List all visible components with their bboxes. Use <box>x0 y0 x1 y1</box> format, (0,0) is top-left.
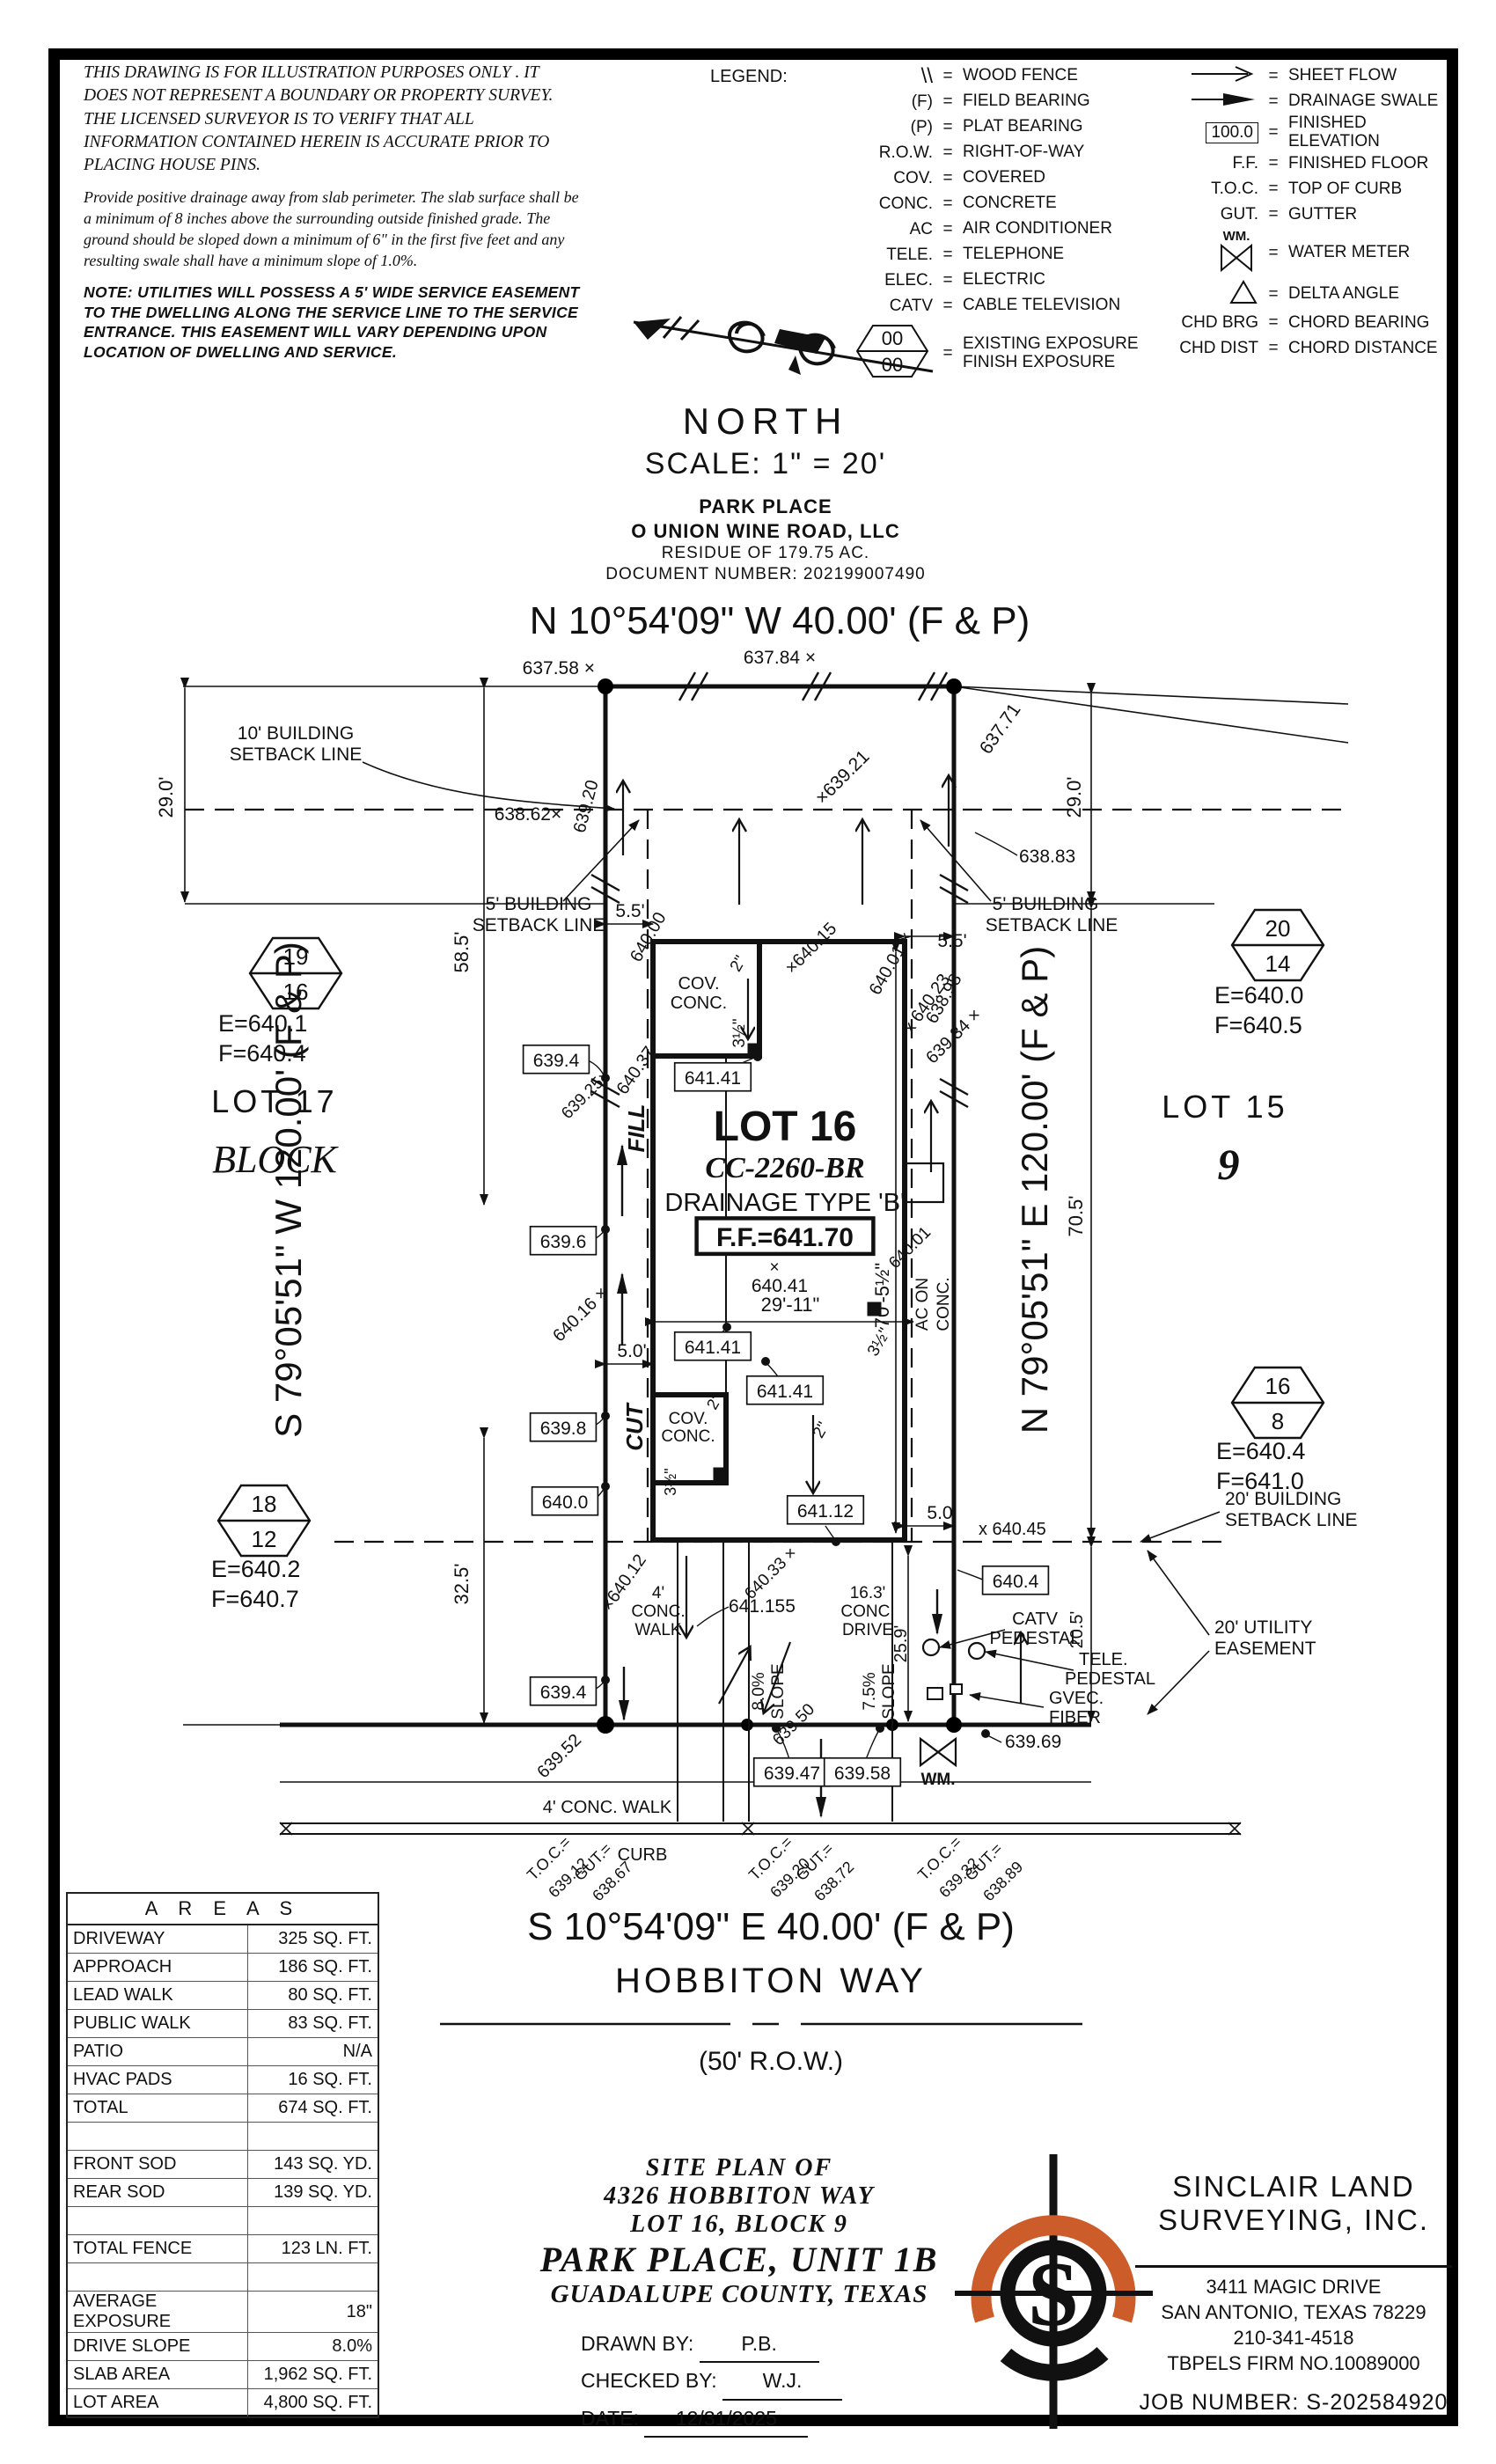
legend-equals: = <box>933 220 963 239</box>
walk-x-marks <box>280 1822 1241 1835</box>
legend-item: COV.=COVERED <box>814 165 1140 191</box>
legend-item: CHD BRG=CHORD BEARING <box>1153 311 1448 336</box>
areas-row: PATION/A <box>68 2038 378 2066</box>
delta-legend-symbol <box>1153 279 1258 311</box>
legend-item: (P)=PLAT BEARING <box>814 114 1140 140</box>
plot-label: CC-2260-BR <box>705 1152 864 1184</box>
abbrev-legend-symbol: ELEC. <box>814 271 933 290</box>
plot-label: 70'-5½" <box>871 1263 893 1328</box>
plot-label: 639.69 <box>1005 1732 1061 1752</box>
catv-pedestal-icon <box>923 1639 939 1655</box>
areas-row-value: 18" <box>247 2292 378 2333</box>
arrow-solid-legend-symbol <box>1153 91 1258 114</box>
plot-label: DRIVE <box>842 1621 893 1639</box>
svg-text:S: S <box>1028 2242 1079 2345</box>
plot-label: WALK <box>634 1621 681 1639</box>
plot-label: 14 <box>1265 950 1291 977</box>
scale-label: SCALE: 1" = 20' <box>563 447 968 481</box>
site-plan-sheet: THIS DRAWING IS FOR ILLUSTRATION PURPOSE… <box>0 0 1496 2464</box>
plot-label: 640.0 <box>542 1492 589 1513</box>
plot-label: COV. <box>669 1410 708 1428</box>
plot-label: 641.41 <box>757 1382 813 1402</box>
legend-item: F.F.=FINISHED FLOOR <box>1153 151 1448 177</box>
plot-label: ×639.21 <box>811 746 873 808</box>
abbrev-legend-symbol: F.F. <box>1153 154 1258 173</box>
legend-item: (F)=FIELD BEARING <box>814 89 1140 114</box>
plot-label: 9 <box>1218 1140 1240 1189</box>
legend-equals: = <box>1258 339 1288 358</box>
plot-label: COV. <box>678 974 719 994</box>
areas-row: APPROACH186 SQ. FT. <box>68 1954 378 1982</box>
legend-equals: = <box>1258 285 1288 304</box>
wood-fence-hashes <box>591 672 968 1107</box>
plot-label: 640.16 × <box>549 1283 612 1346</box>
legend-equals: = <box>933 143 963 163</box>
plot-label: 638.62× <box>495 804 562 825</box>
areas-row-label: SLAB AREA <box>68 2361 247 2389</box>
legend-equals: = <box>1258 92 1288 112</box>
legend-label: CHORD DISTANCE <box>1288 340 1438 358</box>
legend-item: ELEC.=ELECTRIC <box>814 268 1140 293</box>
checked-by-label: CHECKED BY: <box>581 2369 717 2392</box>
areas-row-value: 186 SQ. FT. <box>247 1954 378 1982</box>
abbrev-legend-symbol: CHD BRG <box>1153 313 1258 333</box>
drainage-note: Provide positive drainage away from slab… <box>84 187 581 272</box>
areas-row-value <box>247 2123 378 2151</box>
areas-row-value: 4,800 SQ. FT. <box>247 2389 378 2417</box>
areas-row: AVERAGE EXPOSURE18" <box>68 2292 378 2333</box>
subdivision-owner: O UNION WINE ROAD, LLC <box>546 519 986 544</box>
plot-label: 641.12 <box>797 1501 854 1522</box>
plot-label: 639.8 <box>540 1419 587 1439</box>
plot-label: 5.5' <box>615 901 644 921</box>
drawn-by-label: DRAWN BY: <box>581 2332 693 2355</box>
plot-label: 8 <box>1272 1408 1284 1434</box>
firm-name-line2: SURVEYING, INC. <box>1135 2204 1452 2237</box>
north-arrow-icon <box>607 290 959 405</box>
plot-label: 639.52 <box>533 1730 585 1782</box>
areas-row <box>68 2123 378 2151</box>
firm-name-block: SINCLAIR LAND SURVEYING, INC. <box>1135 2170 1452 2237</box>
areas-row-label: FRONT SOD <box>68 2151 247 2179</box>
abbrev-legend-symbol: CHD DIST <box>1153 339 1258 358</box>
plot-label: 639.4 <box>540 1683 587 1703</box>
areas-row-label: AVERAGE EXPOSURE <box>68 2292 247 2333</box>
areas-row: TOTAL FENCE123 LN. FT. <box>68 2235 378 2263</box>
legend-label: RIGHT-OF-WAY <box>963 143 1084 162</box>
title-county: GUADALUPE COUNTY, TEXAS <box>488 2280 990 2309</box>
title-address: 4326 HOBBITON WAY <box>488 2182 990 2211</box>
legend-item: =DELTA ANGLE <box>1153 279 1448 311</box>
plot-label: 639.58 <box>834 1764 891 1784</box>
plot-label: S 10°54'09" E 40.00' (F & P) <box>527 1905 1015 1948</box>
legend-item: \\=WOOD FENCE <box>814 63 1140 89</box>
plot-label: 639.4 <box>533 1051 580 1071</box>
areas-row: REAR SOD139 SQ. YD. <box>68 2179 378 2207</box>
date-label: DATE: <box>581 2407 639 2430</box>
plot-label: WM. <box>920 1771 955 1789</box>
subdivision-header: PARK PLACE O UNION WINE ROAD, LLC RESIDU… <box>546 495 986 585</box>
areas-row-label <box>68 2263 247 2292</box>
legend-equals: = <box>933 169 963 188</box>
plot-label: PEDESTAL <box>1065 1669 1155 1689</box>
checked-by-value: W.J. <box>722 2363 842 2400</box>
legend-equals: = <box>1258 67 1288 86</box>
plot-label: EASEMENT <box>1214 1639 1316 1659</box>
drawn-by-value: P.B. <box>700 2326 819 2363</box>
areas-row: HVAC PADS16 SQ. FT. <box>68 2066 378 2094</box>
plot-label: x 640.45 <box>979 1520 1046 1539</box>
firm-address2: SAN ANTONIO, TEXAS 78229 <box>1135 2299 1452 2325</box>
plot-label: 16 <box>1265 1373 1291 1399</box>
plot-label: 29'-11" <box>761 1294 820 1316</box>
legend-equals: = <box>1258 244 1288 263</box>
date-value: 12/31/2025 <box>644 2401 808 2438</box>
areas-row-label: LEAD WALK <box>68 1982 247 2010</box>
legend-label: SHEET FLOW <box>1288 67 1397 85</box>
plot-label: 3½" <box>662 1468 679 1495</box>
plot-label: SETBACK LINE <box>986 915 1118 935</box>
abbrev-legend-symbol: CONC. <box>814 194 933 214</box>
legend-equals: = <box>933 118 963 137</box>
plot-label: CATV <box>1012 1610 1059 1629</box>
plot-label: F=640.5 <box>1214 1012 1302 1038</box>
plot-label: 640.33 × <box>741 1544 801 1603</box>
legend-label: AIR CONDITIONER <box>963 220 1112 238</box>
svg-text:WM.: WM. <box>1223 229 1250 244</box>
areas-row: DRIVEWAY325 SQ. FT. <box>68 1925 378 1954</box>
legend-label: DELTA ANGLE <box>1288 285 1399 304</box>
legend-item: R.O.W.=RIGHT-OF-WAY <box>814 140 1140 165</box>
plot-label: 8.0% <box>750 1672 768 1710</box>
legend-equals: = <box>933 92 963 112</box>
legend-item: =DRAINAGE SWALE <box>1153 89 1448 114</box>
legend-equals: = <box>1258 154 1288 173</box>
plot-label: S 79°05'51" W 120.00' (F & P) <box>268 942 309 1438</box>
legend-item: GUT.=GUTTER <box>1153 202 1448 228</box>
tele-pedestal-icon <box>969 1643 985 1659</box>
legend-label: CHORD BEARING <box>1288 314 1429 333</box>
plot-label: 5.0' <box>927 1503 956 1523</box>
plot-label: 12 <box>252 1526 277 1552</box>
abbrev-legend-symbol: COV. <box>814 169 933 188</box>
areas-row-value: 1,962 SQ. FT. <box>247 2361 378 2389</box>
legend-item: CHD DIST=CHORD DISTANCE <box>1153 336 1448 362</box>
plot-label: N 79°05'51" E 120.00' (F & P) <box>1014 946 1055 1434</box>
plot-label: 5' BUILDING <box>993 894 1099 914</box>
subdivision-document: DOCUMENT NUMBER: 202199007490 <box>546 564 986 585</box>
areas-row-value: 325 SQ. FT. <box>247 1925 378 1954</box>
plot-label: 3½" <box>730 1018 749 1047</box>
plot-label: 639.47 <box>764 1764 820 1784</box>
legend-label: FIELD BEARING <box>963 92 1090 111</box>
plot-label: 4' <box>652 1584 664 1602</box>
areas-row-value: N/A <box>247 2038 378 2066</box>
plot-label: 641.41 <box>685 1338 741 1358</box>
water-meter-icon <box>920 1739 956 1765</box>
plot-label: HOBBITON WAY <box>615 1962 927 2000</box>
plot-label: E=640.0 <box>1214 982 1303 1008</box>
title-block: SITE PLAN OF 4326 HOBBITON WAY LOT 16, B… <box>488 2154 990 2309</box>
abbrev-legend-symbol: R.O.W. <box>814 143 933 163</box>
areas-row-value <box>247 2207 378 2235</box>
gvec-fiber-icon <box>950 1684 962 1694</box>
arrow-open-legend-symbol <box>1153 65 1258 88</box>
legend-label: FINISHED ELEVATION <box>1288 114 1448 151</box>
abbrev-legend-symbol: TELE. <box>814 246 933 265</box>
areas-row-value: 83 SQ. FT. <box>247 2010 378 2038</box>
fence-legend-symbol: \\ <box>814 64 933 89</box>
legend-equals: = <box>933 246 963 265</box>
legend-label: WATER METER <box>1288 244 1410 262</box>
plot-label: GVEC. <box>1049 1689 1104 1708</box>
plot-label: FILL <box>623 1104 649 1153</box>
areas-row-value <box>247 2263 378 2292</box>
plot-label: LOT 15 <box>1162 1089 1287 1125</box>
firm-tbpels: TBPELS FIRM NO.10089000 <box>1135 2350 1452 2376</box>
gvec-fiber-icon <box>928 1688 942 1699</box>
plot-label: 70.5' <box>1065 1195 1087 1236</box>
areas-row-label: TOTAL <box>68 2094 247 2123</box>
plot-label: 20.5' <box>1067 1611 1087 1649</box>
plot-label: 20' BUILDING <box>1225 1489 1341 1509</box>
areas-row-value: 80 SQ. FT. <box>247 1982 378 2010</box>
legend-equals: = <box>933 271 963 290</box>
plot-label: 637.58 × <box>523 658 595 678</box>
subdivision-name: PARK PLACE <box>546 495 986 519</box>
plot-label: F.F.=641.70 <box>716 1223 854 1252</box>
areas-row-label: APPROACH <box>68 1954 247 1982</box>
legend-label: ELECTRIC <box>963 271 1045 290</box>
legend-title: LEGEND: <box>710 67 788 87</box>
legend-label: FINISHED FLOOR <box>1288 155 1428 173</box>
title-line: SITE PLAN OF <box>488 2154 990 2182</box>
areas-row: FRONT SOD143 SQ. YD. <box>68 2151 378 2179</box>
signoff-block: DRAWN BY: P.B. CHECKED BY: W.J. DATE: 12… <box>581 2326 842 2438</box>
areas-table-title: A R E A S <box>68 1894 378 1925</box>
plot-label: E=640.2 <box>211 1556 300 1582</box>
legend-label: DRAINAGE SWALE <box>1288 92 1438 111</box>
legend-label: COVERED <box>963 169 1045 187</box>
plot-label: CONC. <box>631 1602 685 1621</box>
abbrev-legend-symbol: (P) <box>814 118 933 137</box>
north-label: NORTH <box>616 400 915 443</box>
plot-label: CUT <box>621 1402 648 1451</box>
utility-easement-note: NOTE: UTILITIES WILL POSSESS A 5' WIDE S… <box>84 282 581 363</box>
plot-label: SETBACK LINE <box>230 744 363 765</box>
areas-row-label: PUBLIC WALK <box>68 2010 247 2038</box>
legend-equals: = <box>1258 180 1288 199</box>
areas-row: SLAB AREA1,962 SQ. FT. <box>68 2361 378 2389</box>
plot-label: 3½" <box>864 1325 895 1360</box>
subdivision-residue: RESIDUE OF 179.75 AC. <box>546 543 986 564</box>
plot-label: 16.3' <box>850 1584 886 1602</box>
areas-row-label: HVAC PADS <box>68 2066 247 2094</box>
areas-row-value: 16 SQ. FT. <box>247 2066 378 2094</box>
plot-label: 29.0' <box>1063 776 1085 818</box>
areas-row-label <box>68 2123 247 2151</box>
title-subdivision: PARK PLACE, UNIT 1B <box>488 2239 990 2280</box>
areas-row-value: 8.0% <box>247 2333 378 2361</box>
firm-address1: 3411 MAGIC DRIVE <box>1135 2274 1452 2299</box>
legend-equals: = <box>1258 313 1288 333</box>
firm-divider <box>1135 2265 1452 2268</box>
plot-label: FIBER <box>1049 1708 1101 1727</box>
areas-row-value: 143 SQ. YD. <box>247 2151 378 2179</box>
plot-label: 7.5% <box>861 1672 879 1710</box>
areas-table-grid: DRIVEWAY325 SQ. FT.APPROACH186 SQ. FT.LE… <box>68 1925 378 2416</box>
box-legend-symbol: 100.0 <box>1153 122 1258 143</box>
legend-label: GUTTER <box>1288 206 1357 224</box>
job-number: JOB NUMBER: S-202584920 <box>1126 2390 1461 2416</box>
abbrev-legend-symbol: T.O.C. <box>1153 180 1258 199</box>
job-number-label: JOB NUMBER: <box>1140 2390 1300 2415</box>
plot-label: 637.71 <box>976 700 1025 758</box>
plot-label: LOT 16 <box>714 1104 857 1150</box>
areas-row-label: LOT AREA <box>68 2389 247 2417</box>
plot-label: 640.01 <box>885 1223 935 1272</box>
plot-label: 637.84 × <box>744 648 816 668</box>
areas-row-label <box>68 2207 247 2235</box>
areas-row-value: 674 SQ. FT. <box>247 2094 378 2123</box>
legend-label: WOOD FENCE <box>963 67 1078 85</box>
plot-label: AC ON <box>913 1278 932 1331</box>
firm-block: S SINCLAIR LAND SURVEYING, INC. 3411 MAG… <box>955 2145 1452 2436</box>
plot-labels: N 10°54'09" W 40.00' (F & P)637.58 ×637.… <box>155 599 1358 2076</box>
plot-label: N 10°54'09" W 40.00' (F & P) <box>530 599 1030 642</box>
plot-label: E=640.4 <box>1216 1438 1305 1464</box>
plot-label: F=640.7 <box>211 1586 299 1612</box>
plot-label: 638.83 <box>1019 847 1075 867</box>
plot-label: ×640.15 <box>781 919 840 978</box>
areas-row-value: 123 LN. FT. <box>247 2235 378 2263</box>
sinclair-logo-icon: S <box>955 2145 1153 2436</box>
areas-row <box>68 2207 378 2235</box>
legend-equals: = <box>933 194 963 214</box>
legend-column-right: =SHEET FLOW=DRAINAGE SWALE100.0=FINISHED… <box>1153 63 1448 362</box>
plot-label: 5.0' <box>617 1341 646 1361</box>
plot-label: CONC. <box>661 1427 715 1446</box>
legend-item: TELE.=TELEPHONE <box>814 242 1140 268</box>
areas-table: A R E A S DRIVEWAY325 SQ. FT.APPROACH186… <box>66 1892 379 2418</box>
areas-row: DRIVE SLOPE8.0% <box>68 2333 378 2361</box>
legend-label: PLAT BEARING <box>963 118 1083 136</box>
abbrev-legend-symbol: AC <box>814 220 933 239</box>
plot-label: 5.5' <box>937 931 966 951</box>
plot-label: SETBACK LINE <box>1225 1510 1358 1530</box>
legend-label: TELEPHONE <box>963 246 1064 264</box>
plot-label: 10' BUILDING <box>238 723 354 744</box>
areas-row: LEAD WALK80 SQ. FT. <box>68 1982 378 2010</box>
job-number-value: S-202584920 <box>1306 2390 1448 2415</box>
plot-label: 25.9' <box>891 1625 911 1663</box>
plot-label: SLOPE <box>769 1663 788 1719</box>
legend-item: AC=AIR CONDITIONER <box>814 216 1140 242</box>
areas-row-label: REAR SOD <box>68 2179 247 2207</box>
legend-item: =SHEET FLOW <box>1153 63 1448 89</box>
disclaimer-paragraph: THIS DRAWING IS FOR ILLUSTRATION PURPOSE… <box>84 62 581 178</box>
plot-label: 32.5' <box>451 1563 473 1604</box>
plot-label: 58.5' <box>451 931 473 972</box>
plot-label: TELE. <box>1079 1650 1128 1669</box>
legend-item: WM. =WATER METER <box>1153 228 1448 279</box>
legend-item: 100.0=FINISHED ELEVATION <box>1153 114 1448 151</box>
legend-equals: = <box>1258 205 1288 224</box>
plot-label: (50' R.O.W.) <box>699 2047 843 2076</box>
firm-address-block: 3411 MAGIC DRIVE SAN ANTONIO, TEXAS 7822… <box>1135 2274 1452 2376</box>
areas-row: LOT AREA4,800 SQ. FT. <box>68 2389 378 2417</box>
plot-label: × <box>769 1258 779 1277</box>
abbrev-legend-symbol: (F) <box>814 92 933 112</box>
legend-item: T.O.C.=TOP OF CURB <box>1153 177 1448 202</box>
plot-label: 4' CONC. WALK <box>543 1798 672 1817</box>
abbrev-legend-symbol: GUT. <box>1153 205 1258 224</box>
firm-name-line1: SINCLAIR LAND <box>1135 2170 1452 2204</box>
wm-legend-symbol: WM. <box>1153 228 1258 279</box>
plot-label: 639.6 <box>540 1232 587 1252</box>
areas-row-value: 139 SQ. YD. <box>247 2179 378 2207</box>
areas-row-label: PATIO <box>68 2038 247 2066</box>
plot-label: 18 <box>252 1491 277 1517</box>
legend-item: CONC.=CONCRETE <box>814 191 1140 216</box>
plot-label: 20 <box>1265 915 1291 942</box>
legend-equals: = <box>933 67 963 86</box>
plot-label: 641.41 <box>685 1068 741 1089</box>
areas-row: PUBLIC WALK83 SQ. FT. <box>68 2010 378 2038</box>
areas-row-label: DRIVEWAY <box>68 1925 247 1954</box>
plot-label: SLOPE <box>880 1663 898 1719</box>
plot-label: CONC. <box>671 994 727 1013</box>
plot-label: 640.4 <box>993 1572 1039 1592</box>
plot-label: 20' UTILITY <box>1214 1617 1312 1638</box>
plot-drawing: N 10°54'09" W 40.00' (F & P)637.58 ×637.… <box>70 598 1426 2094</box>
areas-row-label: TOTAL FENCE <box>68 2235 247 2263</box>
legend-label: CONCRETE <box>963 194 1057 213</box>
legend-label: TOP OF CURB <box>1288 180 1402 199</box>
plot-label: 29.0' <box>155 776 177 818</box>
title-lot-block: LOT 16, BLOCK 9 <box>488 2211 990 2239</box>
legend-label: EXISTING EXPOSURE FINISH EXPOSURE <box>963 335 1139 372</box>
plot-label: SETBACK LINE <box>473 915 605 935</box>
plot-label: DRAINAGE TYPE 'B' <box>664 1189 905 1217</box>
areas-row: TOTAL674 SQ. FT. <box>68 2094 378 2123</box>
disclaimer-block: THIS DRAWING IS FOR ILLUSTRATION PURPOSE… <box>84 62 581 363</box>
plot-label: 2" <box>727 953 751 975</box>
legend-label: CABLE TELEVISION <box>963 297 1120 315</box>
plot-label: 641.155 <box>729 1596 796 1617</box>
firm-phone: 210-341-4518 <box>1135 2325 1452 2350</box>
areas-row-label: DRIVE SLOPE <box>68 2333 247 2361</box>
legend-equals: = <box>1258 123 1288 143</box>
plot-label: CONC. <box>935 1277 953 1331</box>
areas-row <box>68 2263 378 2292</box>
plot-label: 5' BUILDING <box>486 894 592 914</box>
plot-label: CONC. <box>840 1602 894 1621</box>
